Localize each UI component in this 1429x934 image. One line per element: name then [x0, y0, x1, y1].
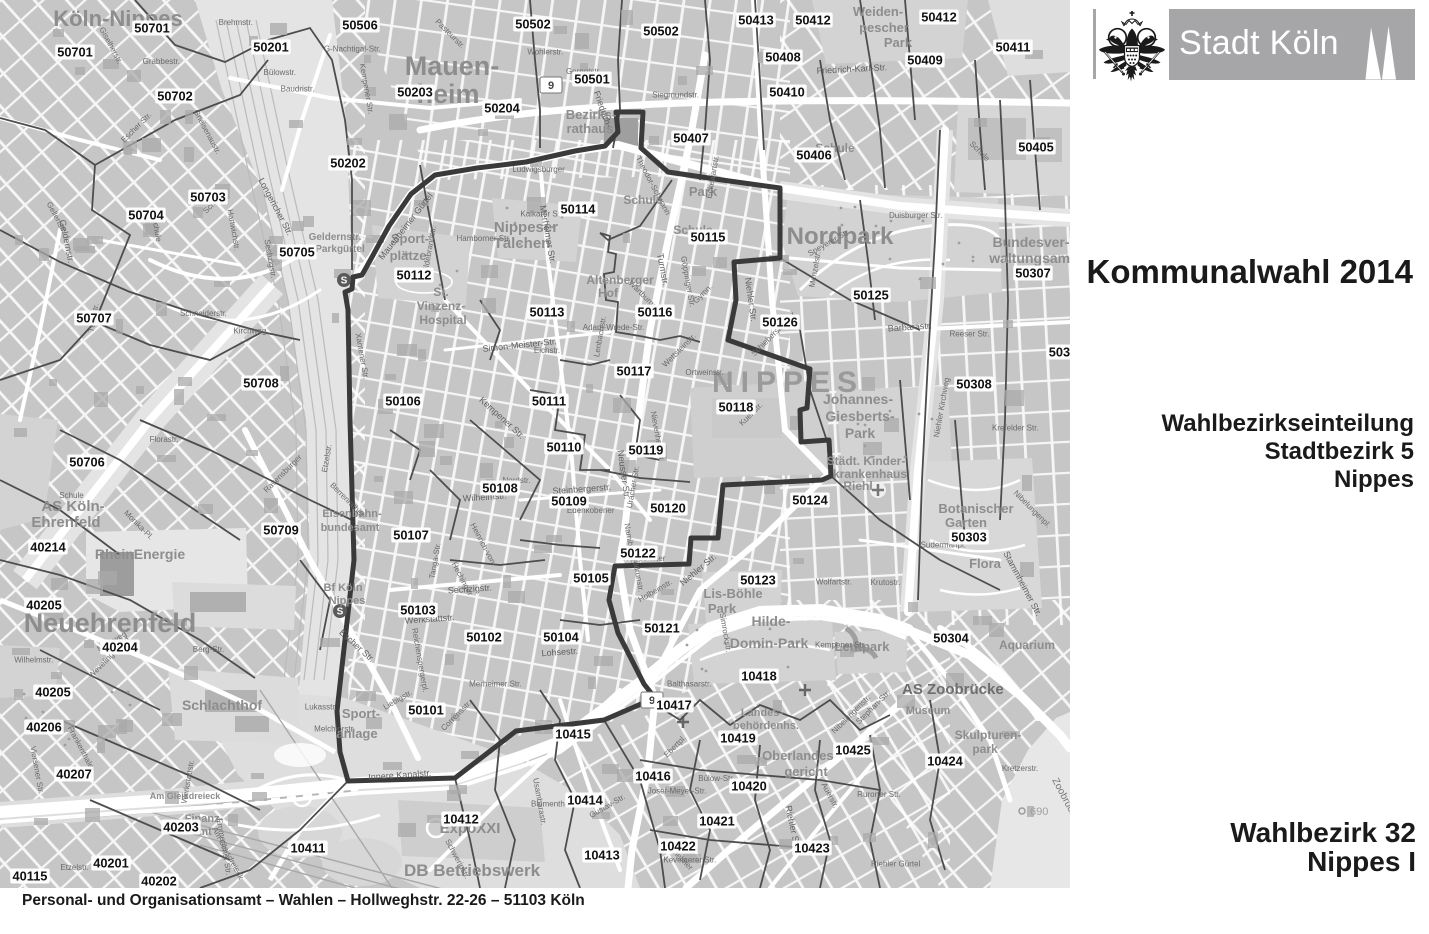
svg-text:10418: 10418	[741, 669, 777, 684]
svg-text:40201: 40201	[93, 856, 129, 871]
svg-text:Parkgürtel: Parkgürtel	[315, 244, 365, 255]
svg-text:50122: 50122	[620, 546, 656, 561]
svg-text:50124: 50124	[792, 493, 828, 508]
svg-text:50406: 50406	[796, 148, 832, 163]
svg-text:Landes-: Landes-	[741, 707, 784, 719]
svg-text:Wohlerstr.: Wohlerstr.	[527, 48, 563, 57]
svg-text:S: S	[337, 607, 344, 618]
svg-text:Oberlandes-: Oberlandes-	[762, 748, 838, 763]
svg-text:50705: 50705	[279, 245, 315, 260]
svg-text:5030: 5030	[1049, 345, 1070, 360]
svg-text:Riehl: Riehl	[843, 479, 872, 493]
svg-text:NIPPES: NIPPES	[712, 366, 864, 399]
svg-text:9: 9	[548, 80, 554, 92]
svg-text:10415: 10415	[555, 727, 591, 742]
svg-text:50119: 50119	[629, 443, 664, 458]
svg-text:50121: 50121	[644, 621, 680, 636]
svg-text:bundesamt: bundesamt	[321, 522, 380, 534]
svg-text:50407: 50407	[673, 131, 709, 146]
svg-text:50201: 50201	[253, 40, 289, 55]
svg-text:Park: Park	[845, 425, 876, 441]
svg-text:50701: 50701	[134, 21, 170, 36]
svg-text:Domin-Park: Domin-Park	[730, 635, 809, 651]
svg-text:Hof: Hof	[598, 286, 619, 300]
svg-text:50104: 50104	[543, 630, 579, 645]
svg-text:50113: 50113	[530, 305, 565, 320]
svg-text:50502: 50502	[643, 24, 679, 39]
svg-text:50506: 50506	[342, 18, 378, 33]
svg-text:10424: 10424	[927, 754, 963, 769]
svg-text:Balthasarstr.: Balthasarstr.	[667, 680, 711, 689]
svg-text:Hospital: Hospital	[419, 313, 466, 327]
svg-text:50702: 50702	[157, 89, 193, 104]
svg-text:Etzelstr.: Etzelstr.	[60, 863, 88, 872]
svg-text:50412: 50412	[795, 13, 831, 28]
svg-text:Bf Köln: Bf Köln	[323, 582, 362, 594]
svg-text:Krefelder Str.: Krefelder Str.	[992, 423, 1039, 432]
svg-text:10420: 10420	[731, 779, 767, 794]
svg-text:DB Betriebswerk: DB Betriebswerk	[404, 861, 541, 880]
svg-text:10414: 10414	[567, 793, 603, 808]
svg-text:10412: 10412	[443, 812, 479, 827]
svg-text:690: 690	[1030, 806, 1048, 818]
svg-text:50708: 50708	[243, 376, 279, 391]
svg-text:Garten: Garten	[945, 515, 987, 530]
svg-text:Brehmstr.: Brehmstr.	[219, 18, 253, 27]
svg-text:Florastr.: Florastr.	[150, 435, 179, 444]
svg-text:50117: 50117	[617, 364, 652, 379]
svg-text:50707: 50707	[76, 311, 112, 326]
svg-text:50203: 50203	[397, 85, 433, 100]
svg-text:50118: 50118	[719, 400, 754, 415]
svg-text:RheinEnergie: RheinEnergie	[95, 546, 185, 562]
svg-text:10416: 10416	[635, 769, 671, 784]
svg-text:50108: 50108	[482, 481, 518, 496]
svg-text:10425: 10425	[835, 743, 871, 758]
svg-text:Flora: Flora	[969, 556, 1002, 571]
svg-text:50408: 50408	[765, 50, 801, 65]
svg-text:Berg-Str.: Berg-Str.	[193, 645, 225, 654]
svg-text:Krutostr.: Krutostr.	[871, 578, 901, 587]
svg-text:Bundesver-: Bundesver-	[992, 234, 1069, 250]
svg-text:50704: 50704	[128, 208, 164, 223]
svg-text:50413: 50413	[738, 13, 774, 28]
svg-text:40214: 40214	[30, 540, 66, 555]
svg-text:Hilde-: Hilde-	[752, 613, 791, 629]
svg-text:Reeser Str.: Reeser Str.	[949, 329, 989, 338]
svg-text:Geldernstr.: Geldernstr.	[309, 232, 362, 243]
svg-text:50409: 50409	[907, 53, 943, 68]
svg-text:50105: 50105	[573, 571, 609, 586]
svg-text:40205: 40205	[35, 685, 71, 700]
svg-text:Josef-Meyer-Str.: Josef-Meyer-Str.	[648, 786, 707, 795]
svg-text:50304: 50304	[933, 631, 969, 646]
svg-text:Melchiorstr.: Melchiorstr.	[314, 725, 355, 734]
svg-text:Lis-Böhle: Lis-Böhle	[703, 586, 762, 601]
svg-text:50114: 50114	[561, 202, 597, 217]
svg-text:Giesberts-: Giesberts-	[825, 408, 895, 424]
svg-text:10422: 10422	[660, 839, 696, 854]
svg-text:40202: 40202	[141, 874, 177, 889]
svg-text:Adam-Wrede-Str.: Adam-Wrede-Str.	[583, 323, 645, 332]
svg-text:50111: 50111	[532, 394, 566, 409]
svg-text:40204: 40204	[102, 640, 138, 655]
svg-text:50106: 50106	[385, 394, 421, 409]
svg-text:50120: 50120	[650, 501, 686, 516]
svg-text:Grabbestr.: Grabbestr.	[143, 57, 180, 66]
svg-text:Eichstr.: Eichstr.	[534, 346, 560, 355]
svg-text:Bülowstr.: Bülowstr.	[264, 68, 296, 77]
svg-text:gericht: gericht	[784, 764, 828, 779]
svg-text:Weiden-: Weiden-	[853, 4, 903, 19]
svg-text:10413: 10413	[584, 848, 620, 863]
svg-text:40207: 40207	[56, 767, 92, 782]
svg-text:Ludwigsburger: Ludwigsburger	[512, 165, 565, 174]
svg-text:Wolfartstr.: Wolfartstr.	[816, 577, 852, 586]
svg-text:50303: 50303	[951, 530, 987, 545]
svg-text:50307: 50307	[1015, 266, 1051, 281]
svg-text:plätze: plätze	[390, 248, 427, 263]
svg-text:Baudristr.: Baudristr.	[281, 84, 315, 93]
svg-text:40115: 40115	[13, 869, 48, 884]
svg-text:Ortweinstr.: Ortweinstr.	[685, 368, 723, 377]
svg-text:Städt. Kinder-: Städt. Kinder-	[827, 454, 906, 468]
svg-text:50501: 50501	[574, 72, 610, 87]
svg-text:50125: 50125	[853, 288, 889, 303]
svg-text:Rurorter Str.: Rurorter Str.	[857, 790, 901, 799]
svg-text:50405: 50405	[1018, 140, 1054, 155]
svg-text:50412: 50412	[921, 10, 957, 25]
svg-text:S: S	[341, 276, 348, 287]
svg-text:Sport-: Sport-	[342, 706, 380, 721]
svg-text:Nippes: Nippes	[329, 595, 366, 607]
svg-text:Kalkarer Str.: Kalkarer Str.	[520, 210, 564, 219]
svg-text:Ehrenfeld: Ehrenfeld	[31, 514, 100, 531]
svg-text:10411: 10411	[291, 841, 326, 856]
svg-text:AS Zoobrücke: AS Zoobrücke	[902, 681, 1004, 698]
svg-text:9: 9	[649, 695, 655, 707]
svg-text:Botanischer: Botanischer	[938, 501, 1013, 516]
svg-text:50115: 50115	[691, 230, 726, 245]
svg-text:10417: 10417	[656, 698, 692, 713]
svg-text:50308: 50308	[956, 377, 992, 392]
svg-text:50102: 50102	[466, 630, 502, 645]
svg-text:50107: 50107	[393, 528, 429, 543]
svg-text:50110: 50110	[547, 440, 582, 455]
svg-text:50116: 50116	[638, 305, 673, 320]
svg-text:St.: St.	[433, 285, 448, 299]
svg-text:50411: 50411	[996, 40, 1031, 55]
svg-text:Vinzenz-: Vinzenz-	[417, 299, 465, 313]
svg-text:50502: 50502	[515, 17, 551, 32]
svg-text:50123: 50123	[740, 573, 776, 588]
svg-text:waltungsamt: waltungsamt	[988, 250, 1070, 266]
svg-text:pescher: pescher	[859, 20, 909, 35]
svg-text:40205: 40205	[26, 598, 62, 613]
svg-text:Merheimer Str.: Merheimer Str.	[469, 679, 521, 688]
svg-text:50709: 50709	[263, 523, 299, 538]
svg-text:Schneiderstr.: Schneiderstr.	[180, 309, 227, 318]
svg-text:Duisburger Str.: Duisburger Str.	[889, 211, 942, 220]
svg-text:50703: 50703	[190, 190, 226, 205]
svg-text:40206: 40206	[26, 720, 62, 735]
svg-text:park: park	[972, 742, 998, 756]
svg-text:Schlachthof: Schlachthof	[182, 697, 262, 713]
svg-text:Museum: Museum	[906, 705, 951, 717]
svg-text:Altenberger: Altenberger	[586, 273, 654, 287]
svg-text:Schule: Schule	[59, 491, 84, 500]
svg-text:Hamborner Str.: Hamborner Str.	[456, 234, 510, 243]
svg-text:50701: 50701	[57, 45, 93, 60]
svg-text:50410: 50410	[769, 85, 805, 100]
svg-text:50109: 50109	[551, 494, 587, 509]
svg-text:AS Köln-: AS Köln-	[41, 498, 104, 515]
svg-text:Aquarium: Aquarium	[999, 638, 1055, 652]
svg-text:50706: 50706	[69, 455, 105, 470]
svg-text:G-Nachtigal-Str.: G-Nachtigal-Str.	[324, 44, 381, 53]
svg-text:Mauen-: Mauen-	[405, 51, 500, 81]
svg-text:40203: 40203	[163, 820, 199, 835]
svg-text:Kirchweg: Kirchweg	[233, 326, 266, 335]
svg-text:50103: 50103	[400, 603, 436, 618]
svg-text:50101: 50101	[408, 703, 444, 718]
svg-text:Kretzerstr.: Kretzerstr.	[1002, 764, 1038, 773]
svg-text:10421: 10421	[699, 814, 735, 829]
svg-text:10423: 10423	[794, 841, 830, 856]
svg-text:Skulpturen-: Skulpturen-	[955, 728, 1022, 742]
svg-text:Park: Park	[884, 35, 913, 50]
svg-text:50202: 50202	[330, 156, 366, 171]
svg-text:Wilhelmstr.: Wilhelmstr.	[14, 655, 53, 664]
svg-text:Siegmundstr.: Siegmundstr.	[652, 90, 699, 99]
svg-text:50112: 50112	[397, 268, 432, 283]
svg-text:10419: 10419	[720, 731, 756, 746]
svg-text:Kempener Str.: Kempener Str.	[815, 641, 866, 650]
svg-text:50126: 50126	[762, 315, 798, 330]
svg-text:Lukasstr.: Lukasstr.	[305, 702, 337, 711]
svg-text:Riehler Gürtel: Riehler Gürtel	[871, 860, 921, 869]
svg-text:50204: 50204	[484, 101, 520, 116]
